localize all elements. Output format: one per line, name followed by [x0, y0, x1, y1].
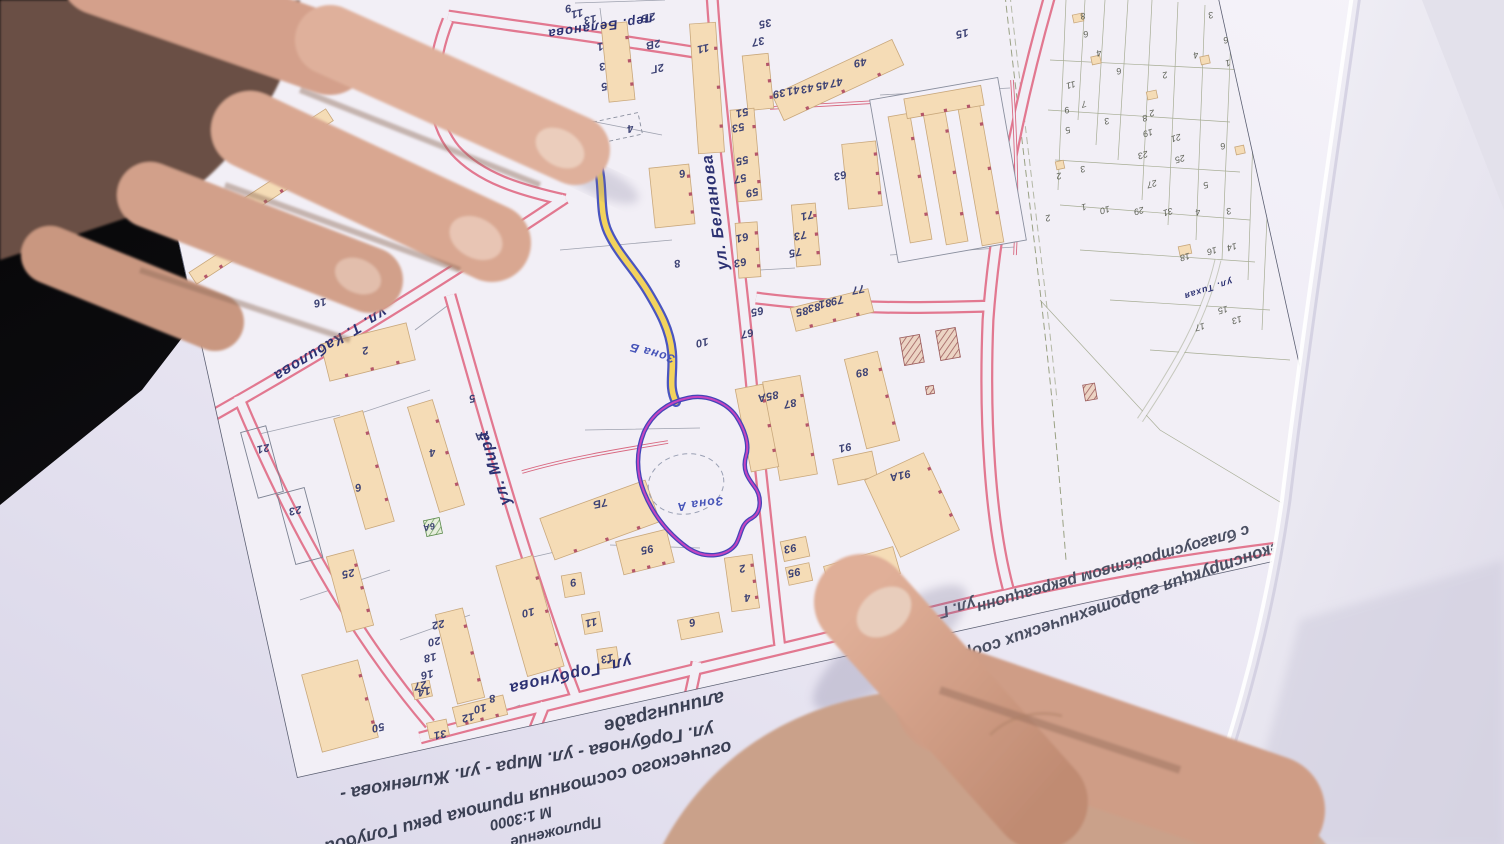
photo-of-map: 9111313542Б2В2Г1135373941434547495153555…: [0, 0, 1504, 844]
left-hand: [0, 0, 592, 340]
hands-layer: [0, 0, 1504, 844]
right-hand: [660, 576, 1330, 844]
left-index-finger: [330, 40, 575, 150]
